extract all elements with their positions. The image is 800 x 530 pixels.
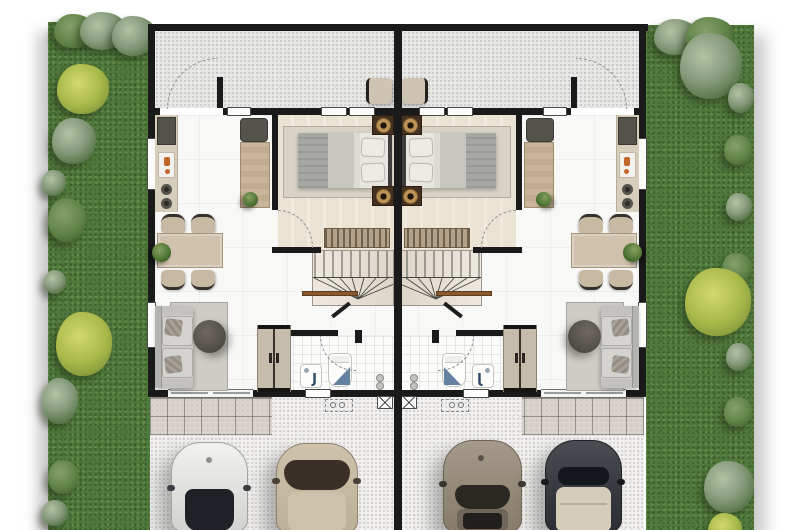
sofa-back <box>632 306 639 388</box>
table-plant <box>152 243 171 262</box>
window <box>419 107 445 116</box>
throw-pillow <box>164 355 183 374</box>
bush <box>724 397 752 427</box>
bathroom-wall-stub <box>355 330 362 343</box>
wardrobe-handle <box>515 353 518 363</box>
porch-tiles <box>150 397 272 435</box>
car-windshield <box>284 460 350 490</box>
wardrobe-door-split <box>273 329 275 388</box>
garden-right <box>646 25 754 530</box>
blanket-folds <box>298 133 328 188</box>
car-windshield <box>185 489 234 530</box>
car-windshield <box>558 467 609 485</box>
front-window <box>463 389 489 398</box>
car-roof-seam <box>560 503 607 505</box>
car-mirror <box>272 478 280 484</box>
bush <box>42 500 68 526</box>
bush <box>48 460 78 494</box>
hob-burner <box>161 184 172 195</box>
table-lamp <box>403 118 418 133</box>
car-white <box>171 442 248 530</box>
table-lamp <box>376 189 391 204</box>
car-windshield <box>455 485 510 509</box>
double-bed <box>402 133 496 188</box>
coffee-table <box>568 320 601 353</box>
sofa <box>155 306 193 388</box>
bush <box>724 135 752 165</box>
window <box>227 107 251 116</box>
floor-plan-canvas: J <box>0 0 800 530</box>
bush <box>42 378 78 424</box>
staircase <box>400 250 482 306</box>
staircase <box>312 250 394 306</box>
bush <box>52 118 96 164</box>
table-plant <box>623 243 642 262</box>
car-roof <box>556 487 611 530</box>
bedroom-wall <box>272 112 278 210</box>
faucet-knob <box>624 169 629 174</box>
stove <box>157 117 176 145</box>
car-emblem <box>206 457 212 463</box>
door-panel <box>171 392 208 394</box>
blanket-folds <box>466 133 496 188</box>
car-sunroof <box>463 513 502 529</box>
dining-chair <box>609 214 633 234</box>
utility-knob <box>330 402 336 408</box>
bed-pillow <box>361 137 386 157</box>
bed-pillow <box>409 137 434 157</box>
car-mirror <box>353 478 361 484</box>
stair-rail <box>302 291 358 296</box>
dining-chair <box>579 214 603 234</box>
window <box>447 107 473 116</box>
window <box>543 107 567 116</box>
stair-treads <box>312 250 394 306</box>
stove <box>618 117 637 145</box>
terrace-wall-seg <box>634 108 639 115</box>
desk-plant <box>536 192 551 207</box>
car-champagne <box>276 443 358 530</box>
wardrobe-cap <box>504 388 536 392</box>
faucet <box>164 157 170 166</box>
car-mirror <box>617 479 625 485</box>
kitchen-sink <box>619 152 636 178</box>
utility-knob <box>458 402 464 408</box>
basin-faucet-glyph: J <box>312 373 317 386</box>
terrace-chair <box>402 78 428 104</box>
front-window <box>305 389 331 398</box>
door-panel <box>544 392 581 394</box>
car-mirror <box>243 485 251 491</box>
dining-chair <box>191 270 215 290</box>
sofa <box>601 306 639 388</box>
tree-canopy <box>57 64 109 114</box>
faucet <box>624 157 630 166</box>
bush <box>728 83 754 113</box>
bush <box>704 461 754 513</box>
wardrobe-handle <box>269 353 272 363</box>
door-panel <box>586 392 623 394</box>
hob-burner <box>622 198 633 209</box>
car-mirror <box>439 481 447 487</box>
dining-chair <box>191 214 215 234</box>
coffee-table <box>193 320 226 353</box>
car-roof <box>288 492 346 530</box>
washbasin: J <box>472 364 494 388</box>
sofa-arm <box>162 379 193 388</box>
faucet-knob <box>165 169 170 174</box>
stair-rail <box>436 291 492 296</box>
washing-machine-outline <box>377 396 393 409</box>
dresser <box>324 228 390 248</box>
car-mirror <box>518 481 526 487</box>
wardrobe-door-split <box>519 329 521 388</box>
car-mirror <box>541 479 549 485</box>
wardrobe-handle <box>276 353 279 363</box>
tree-canopy <box>685 268 751 336</box>
bed-pillow <box>409 162 434 182</box>
floor-drain <box>376 374 384 382</box>
bush <box>42 170 66 196</box>
terrace-chair <box>366 78 392 104</box>
utility-knob <box>449 402 455 408</box>
utility-knob <box>339 402 345 408</box>
door-panel <box>213 392 250 394</box>
sofa-arm <box>601 379 632 388</box>
nightstand <box>372 186 394 206</box>
table-lamp <box>376 118 391 133</box>
bush <box>726 193 752 221</box>
table-lamp <box>403 189 418 204</box>
basin-drain <box>304 368 309 373</box>
sofa-arm <box>601 306 632 315</box>
car-emblem <box>478 455 484 461</box>
bush <box>48 198 86 242</box>
car-taupe <box>443 440 522 530</box>
throw-pillow <box>611 318 630 337</box>
nightstand <box>400 186 422 206</box>
utility-outline <box>441 399 469 412</box>
wardrobe <box>503 325 537 392</box>
bush <box>726 343 752 371</box>
tree-canopy <box>56 312 112 376</box>
side-window-kitchen <box>638 138 647 190</box>
throw-pillow <box>611 355 630 374</box>
kitchen-sink <box>158 152 175 178</box>
dining-chair <box>579 270 603 290</box>
desk-chair <box>526 118 554 142</box>
floor-drain <box>376 382 384 390</box>
washing-machine-outline <box>401 396 417 409</box>
desk-plant <box>243 192 258 207</box>
dresser <box>404 228 470 248</box>
basin-drain <box>485 368 490 373</box>
bush <box>44 270 66 294</box>
washbasin: J <box>300 364 322 388</box>
wardrobe-cap <box>258 388 290 392</box>
bush <box>708 513 742 530</box>
dining-chair <box>161 214 185 234</box>
sofa-arm <box>162 306 193 315</box>
garden-left <box>48 22 150 530</box>
wardrobe-handle <box>522 353 525 363</box>
throw-pillow <box>164 318 183 337</box>
basin-faucet-glyph: J <box>477 373 482 386</box>
double-bed <box>298 133 392 188</box>
car-dark <box>545 440 622 530</box>
nightstand <box>372 115 394 135</box>
floor-drain <box>410 382 418 390</box>
nightstand <box>400 115 422 135</box>
dining-chair <box>161 270 185 290</box>
wardrobe <box>257 325 291 392</box>
desk-chair <box>240 118 268 142</box>
hob-burner <box>622 184 633 195</box>
utility-outline <box>325 399 353 412</box>
sofa-back <box>155 306 162 388</box>
dining-chair <box>609 270 633 290</box>
bed-pillow <box>361 162 386 182</box>
window <box>321 107 347 116</box>
hob-burner <box>161 198 172 209</box>
terrace-wall-seg <box>155 108 160 115</box>
bedroom-wall <box>516 112 522 210</box>
porch-tiles <box>522 397 644 435</box>
stair-treads <box>400 250 482 306</box>
floor-drain <box>410 374 418 382</box>
car-mirror <box>167 485 175 491</box>
side-window-living <box>638 302 647 348</box>
party-wall <box>394 24 402 530</box>
